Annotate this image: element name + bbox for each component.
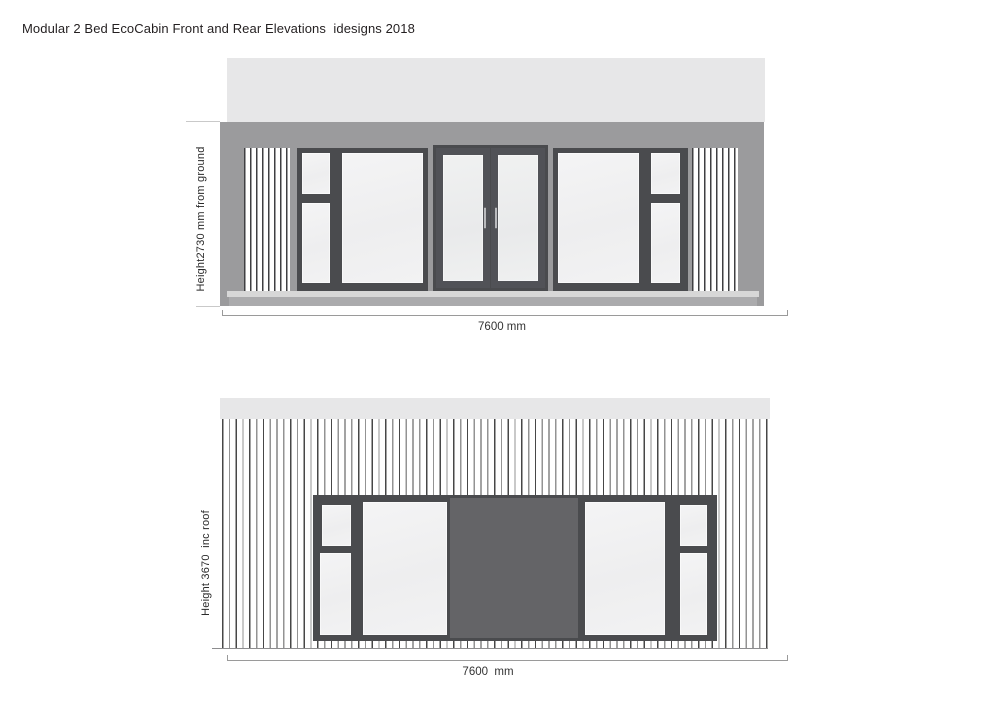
front-dimension-tick-right: [787, 310, 788, 316]
rear-center-wall-panel: [450, 498, 578, 638]
window-pane-small: [322, 505, 351, 546]
rear-height-label: Height 3670 inc roof: [200, 510, 212, 616]
front-dimension-line: [222, 315, 788, 316]
front-width-dimension: 7600 mm: [392, 321, 612, 333]
door-handle-left: [484, 208, 486, 228]
front-dimension-tick-left: [222, 310, 223, 316]
window-pane-small: [651, 153, 680, 194]
rear-dimension-tick-left: [227, 655, 228, 661]
front-siding-right: [692, 148, 738, 291]
door-leaf-left: [436, 148, 490, 288]
rear-dimension-line: [227, 660, 788, 661]
window-pane-narrow: [302, 203, 330, 283]
extension-line-ground: [196, 306, 220, 307]
door-leaf-right: [491, 148, 545, 288]
window-pane-small: [302, 153, 330, 194]
front-sill-lower: [229, 297, 757, 306]
front-siding-left: [244, 148, 290, 291]
window-pane-narrow: [320, 553, 351, 635]
rear-roof-band: [220, 398, 770, 419]
window-pane-large: [558, 153, 639, 283]
front-window-unit-right: [553, 148, 688, 292]
rear-width-dimension: 7600 mm: [378, 666, 598, 678]
door-glass-right: [498, 155, 538, 281]
door-glass-left: [443, 155, 483, 281]
window-pane-large: [342, 153, 423, 283]
window-pane-small: [680, 505, 707, 546]
drawing-title: Modular 2 Bed EcoCabin Front and Rear El…: [22, 21, 415, 36]
extension-line-eaves: [186, 121, 220, 122]
rear-dimension-tick-right: [787, 655, 788, 661]
window-pane-large: [363, 502, 447, 635]
front-height-label: Height2730 mm from ground: [195, 146, 207, 291]
window-pane-large: [585, 502, 665, 635]
rear-window-unit: [313, 495, 717, 641]
window-pane-narrow: [651, 203, 680, 283]
front-window-unit-left: [297, 148, 428, 292]
drawing-sheet: Modular 2 Bed EcoCabin Front and Rear El…: [0, 0, 1000, 706]
front-roof-band: [227, 58, 765, 122]
rear-ground-line: [212, 648, 768, 649]
front-double-door: [433, 145, 548, 291]
door-handle-right: [495, 208, 497, 228]
window-pane-narrow: [680, 553, 707, 635]
